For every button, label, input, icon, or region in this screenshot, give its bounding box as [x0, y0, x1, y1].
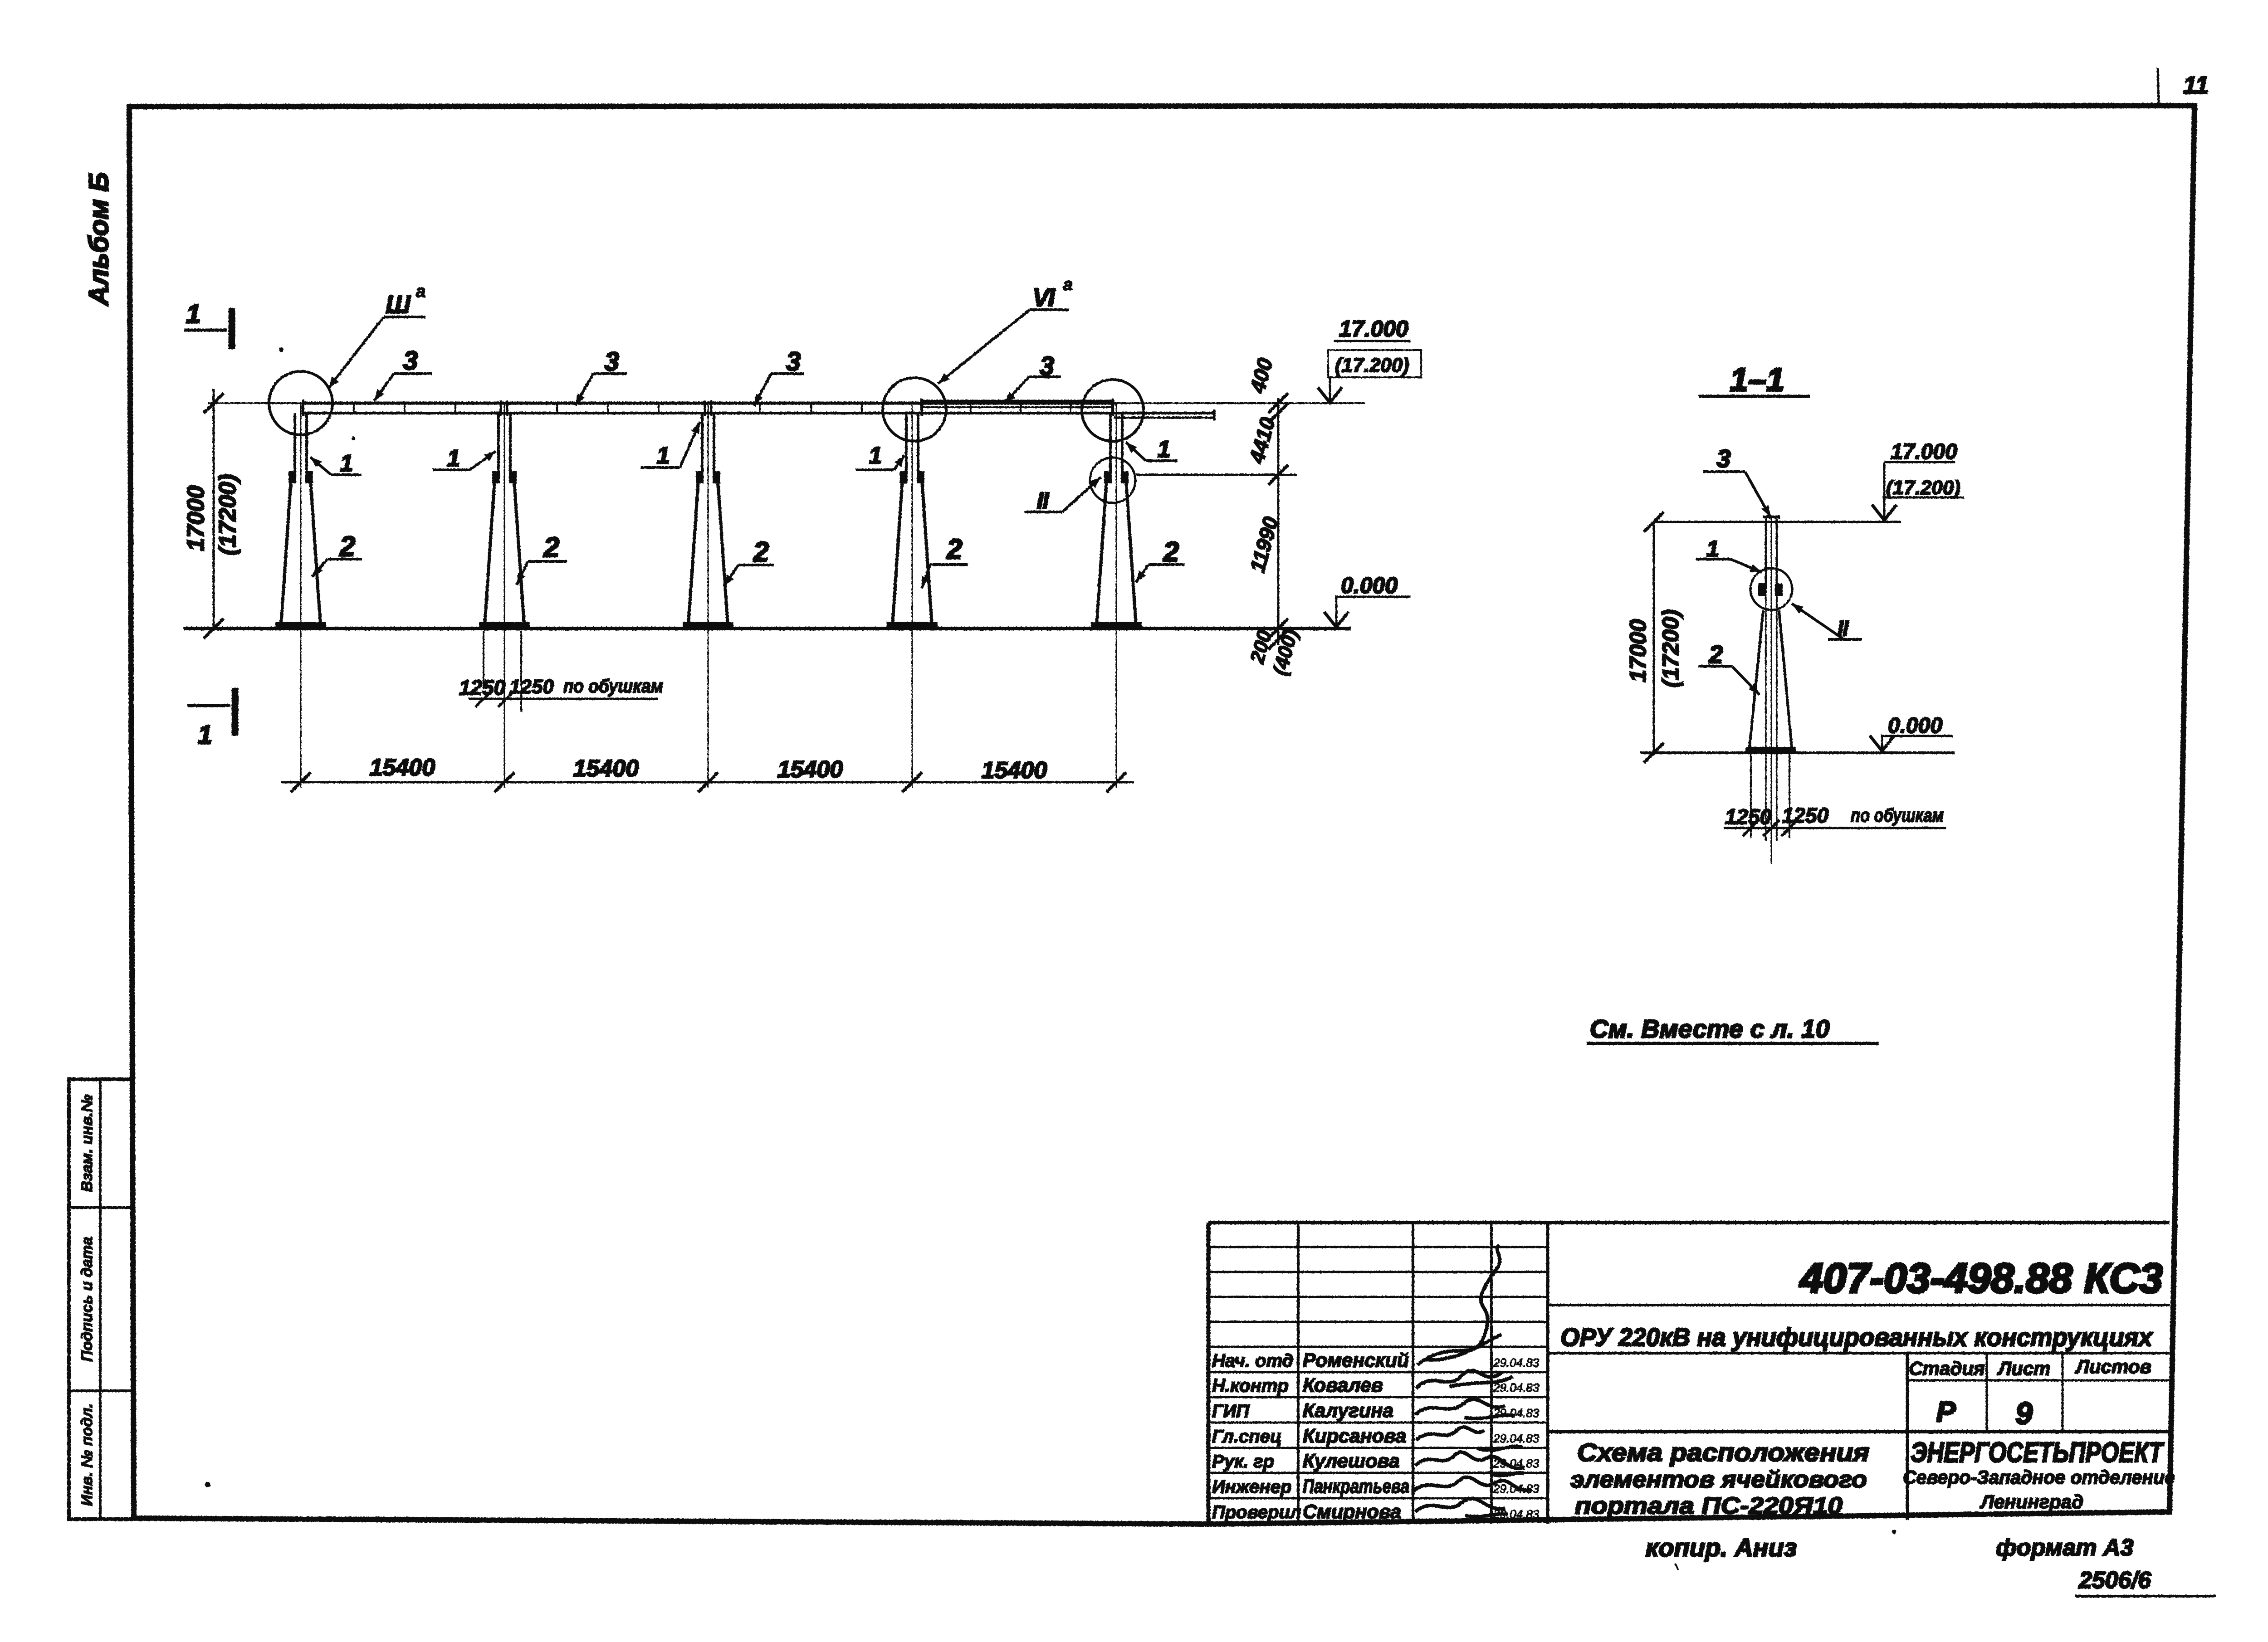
- svg-text:а: а: [416, 282, 425, 301]
- svg-text:Листов: Листов: [2075, 1356, 2151, 1377]
- svg-text:Подпись и дата: Подпись и дата: [78, 1237, 96, 1362]
- svg-text:Кулешова: Кулешова: [1303, 1450, 1400, 1472]
- svg-text:2: 2: [339, 531, 355, 562]
- svg-text:Северо-Западное отделение: Северо-Западное отделение: [1903, 1467, 2175, 1488]
- svg-text:Ш: Ш: [386, 290, 411, 318]
- svg-text:Р: Р: [1936, 1395, 1956, 1428]
- svg-text:Ленинград: Ленинград: [1980, 1491, 2083, 1512]
- svg-text:Роменский: Роменский: [1303, 1350, 1409, 1371]
- svg-text:по обушкам: по обушкам: [563, 675, 663, 697]
- svg-text:II: II: [1037, 488, 1050, 514]
- svg-text:Лист: Лист: [1997, 1358, 2050, 1379]
- svg-text:3: 3: [403, 346, 418, 375]
- svg-text:2: 2: [946, 534, 962, 565]
- svg-text:Н.контр: Н.контр: [1212, 1376, 1289, 1396]
- svg-text:17000: 17000: [183, 486, 209, 551]
- svg-text:Панкратьева: Панкратьева: [1303, 1476, 1409, 1497]
- svg-text:VI: VI: [1032, 283, 1056, 312]
- svg-text:элементов ячейкового: элементов ячейкового: [1570, 1467, 1867, 1493]
- svg-text:(17200): (17200): [1658, 609, 1683, 687]
- svg-text:1: 1: [657, 443, 670, 469]
- svg-text:29.04.83: 29.04.83: [1493, 1356, 1540, 1369]
- svg-text:2: 2: [1709, 640, 1723, 668]
- svg-text:См. Вместе с л. 10: См. Вместе с л. 10: [1590, 1014, 1830, 1043]
- svg-text:15400: 15400: [573, 755, 639, 782]
- svg-text:3: 3: [1717, 444, 1731, 473]
- svg-text:3: 3: [605, 347, 619, 376]
- svg-text:(17.200): (17.200): [1886, 477, 1960, 499]
- svg-text:17.000: 17.000: [1891, 440, 1957, 464]
- svg-text:0.000: 0.000: [1888, 714, 1942, 738]
- svg-text:1250: 1250: [1725, 805, 1772, 828]
- svg-text:Стадия: Стадия: [1909, 1358, 1984, 1379]
- svg-text:1: 1: [340, 450, 353, 477]
- svg-text:по обушкам: по обушкам: [1851, 804, 1944, 826]
- svg-text:(17.200): (17.200): [1335, 354, 1409, 376]
- svg-text:1: 1: [186, 299, 200, 329]
- svg-text:2: 2: [753, 536, 769, 568]
- svg-text:Нач. отд: Нач. отд: [1212, 1351, 1293, 1371]
- svg-text:Калугина: Калугина: [1303, 1400, 1393, 1422]
- svg-text:Рук. гр: Рук. гр: [1212, 1452, 1274, 1471]
- svg-text:формат А3: формат А3: [1996, 1535, 2133, 1561]
- svg-text:1250: 1250: [509, 676, 554, 698]
- svg-text:ГИП: ГИП: [1212, 1401, 1250, 1421]
- svg-text:Альбом Б: Альбом Б: [83, 172, 114, 307]
- svg-text:Схема расположения: Схема расположения: [1577, 1438, 1869, 1467]
- svg-text:15400: 15400: [370, 755, 435, 781]
- svg-text:3: 3: [786, 347, 801, 376]
- svg-text:Кирсанова: Кирсанова: [1303, 1425, 1406, 1447]
- svg-text:(17200): (17200): [215, 474, 241, 555]
- svg-text:15400: 15400: [982, 757, 1047, 784]
- svg-text:Гл.спец: Гл.спец: [1212, 1427, 1282, 1447]
- svg-text:17000: 17000: [1625, 619, 1651, 682]
- svg-text:9: 9: [2015, 1396, 2033, 1431]
- svg-text:Смирнова: Смирнова: [1303, 1501, 1401, 1523]
- svg-text:Инженер: Инженер: [1212, 1477, 1291, 1497]
- svg-text:а: а: [1063, 275, 1073, 294]
- svg-text:Инв. № подл.: Инв. № подл.: [78, 1403, 96, 1506]
- svg-text:2: 2: [543, 532, 559, 563]
- svg-text:2: 2: [1163, 536, 1179, 568]
- svg-text:1: 1: [447, 445, 460, 472]
- svg-text:1: 1: [1706, 536, 1719, 561]
- svg-text:17.000: 17.000: [1339, 316, 1408, 341]
- svg-text:1–1: 1–1: [1730, 362, 1784, 398]
- svg-text:1: 1: [198, 720, 212, 750]
- svg-text:ЭНЕРГОСЕТЬПРОЕКТ: ЭНЕРГОСЕТЬПРОЕКТ: [1911, 1437, 2165, 1468]
- svg-text:Ковалев: Ковалев: [1303, 1374, 1383, 1396]
- svg-text:ОРУ 220кВ на унифицированных: ОРУ 220кВ на унифицированных конструкция…: [1560, 1323, 2154, 1351]
- svg-text:портала ПС-220Я10: портала ПС-220Я10: [1575, 1493, 1843, 1519]
- svg-text:15400: 15400: [777, 756, 843, 783]
- svg-text:407-03-498.88 КС3: 407-03-498.88 КС3: [1799, 1255, 2163, 1301]
- svg-text:копир. Аниз: копир. Аниз: [1646, 1533, 1797, 1562]
- svg-text:1: 1: [869, 443, 882, 469]
- svg-text:2506/6: 2506/6: [2078, 1567, 2151, 1593]
- svg-text:0.000: 0.000: [1341, 573, 1398, 598]
- svg-text:1250: 1250: [1782, 804, 1829, 827]
- svg-text:29.04.83: 29.04.83: [1493, 1432, 1540, 1445]
- svg-text:Проверил: Проверил: [1212, 1502, 1301, 1522]
- svg-text:Взам. инв.№: Взам. инв.№: [78, 1094, 96, 1192]
- svg-text:1: 1: [1158, 436, 1171, 463]
- svg-text:11: 11: [2183, 72, 2209, 99]
- svg-text:1250: 1250: [459, 676, 506, 699]
